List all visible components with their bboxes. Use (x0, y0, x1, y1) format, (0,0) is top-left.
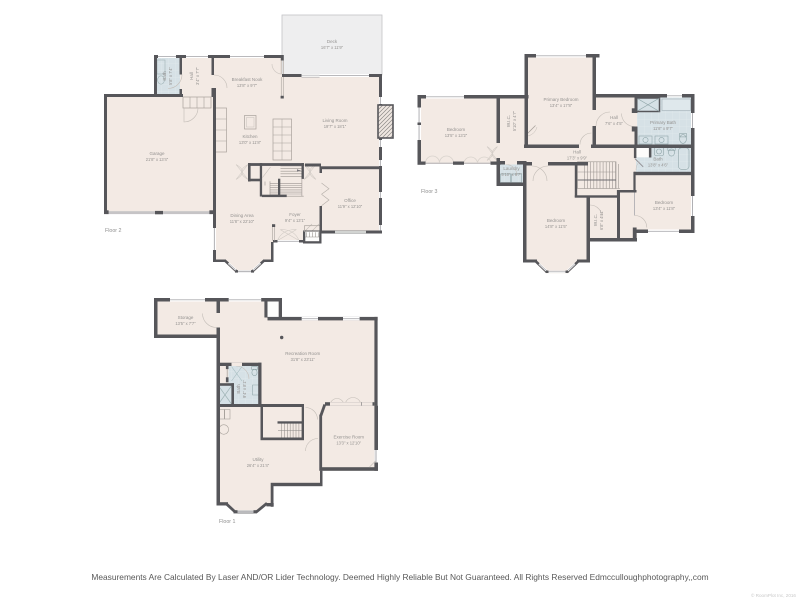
svg-text:© RoomPlot Inc, 2016: © RoomPlot Inc, 2016 (751, 592, 796, 598)
svg-text:13'4" x 17'8": 13'4" x 17'8" (550, 103, 573, 108)
svg-text:W.I.C.: W.I.C. (506, 115, 511, 127)
svg-text:Living Room: Living Room (322, 118, 347, 123)
svg-text:Primary Bath: Primary Bath (650, 120, 677, 125)
svg-text:Floor 1: Floor 1 (219, 519, 236, 525)
svg-text:Office: Office (344, 198, 356, 203)
svg-text:Dining Area: Dining Area (230, 213, 254, 218)
svg-text:Deck: Deck (327, 39, 338, 44)
svg-text:Bedroom: Bedroom (447, 127, 466, 132)
svg-text:13'8" x 9'7": 13'8" x 9'7" (237, 83, 258, 88)
svg-text:Bedroom: Bedroom (547, 218, 566, 223)
svg-text:5'10" x 6'7": 5'10" x 6'7" (501, 172, 522, 177)
svg-text:11'9" x 12'10": 11'9" x 12'10" (338, 204, 363, 209)
svg-text:Storage: Storage (178, 315, 194, 320)
svg-text:11'8" x 22'10": 11'8" x 22'10" (230, 219, 255, 224)
svg-text:Primary Bedroom: Primary Bedroom (543, 97, 578, 102)
svg-text:7'6" x 4'5": 7'6" x 4'5" (605, 121, 623, 126)
svg-text:Hall: Hall (573, 150, 581, 155)
svg-text:Bath: Bath (162, 71, 167, 81)
svg-text:W.I.C.: W.I.C. (593, 214, 598, 226)
svg-text:13'3" x 12'10": 13'3" x 12'10" (336, 441, 361, 446)
svg-text:Bath: Bath (653, 157, 663, 162)
svg-text:Garage: Garage (149, 151, 165, 156)
svg-text:9'4" x 8'1": 9'4" x 8'1" (242, 380, 247, 398)
svg-text:13'5" x 13'2": 13'5" x 13'2" (445, 133, 468, 138)
svg-text:Recreation Room: Recreation Room (285, 351, 320, 356)
svg-text:Hall: Hall (610, 115, 618, 120)
svg-text:13'8" x 4'6": 13'8" x 4'6" (648, 163, 669, 168)
svg-text:Bedroom: Bedroom (655, 200, 674, 205)
svg-text:Bath: Bath (236, 384, 241, 394)
svg-text:5'8" x 7'4": 5'8" x 7'4" (168, 67, 173, 85)
svg-text:6'8" x 4'11": 6'8" x 4'11" (599, 210, 604, 230)
svg-text:Utility: Utility (253, 457, 265, 462)
svg-text:9'4" x 13'1": 9'4" x 13'1" (285, 218, 306, 223)
svg-text:26'4" x 21'4": 26'4" x 21'4" (247, 463, 270, 468)
svg-text:31'8" x 23'11": 31'8" x 23'11" (291, 357, 316, 362)
svg-text:Measurements Are Calculated By: Measurements Are Calculated By Laser AND… (91, 572, 708, 582)
svg-text:13'5" x 7'7": 13'5" x 7'7" (175, 321, 196, 326)
svg-text:Breakfast Nook: Breakfast Nook (232, 77, 264, 82)
svg-text:17'3" x 9'9": 17'3" x 9'9" (567, 156, 588, 161)
svg-text:13'0" x 11'8": 13'0" x 11'8" (239, 140, 262, 145)
svg-text:16'7" x 11'9": 16'7" x 11'9" (321, 45, 344, 50)
svg-text:Floor 2: Floor 2 (105, 228, 122, 234)
svg-text:5'10" x 4'7": 5'10" x 4'7" (512, 110, 517, 131)
svg-text:13'4" x 11'8": 13'4" x 11'8" (653, 206, 676, 211)
svg-text:Kitchen: Kitchen (242, 134, 258, 139)
svg-text:Floor 3: Floor 3 (421, 189, 438, 195)
svg-text:Exercise Room: Exercise Room (333, 435, 364, 440)
svg-text:14'8" x 11'5": 14'8" x 11'5" (545, 224, 568, 229)
svg-text:Laundry: Laundry (503, 166, 520, 171)
svg-text:21'8" x 13'4": 21'8" x 13'4" (146, 157, 169, 162)
svg-text:Hall: Hall (189, 72, 194, 80)
svg-text:11'8" x 9'7": 11'8" x 9'7" (653, 126, 673, 131)
svg-text:Foyer: Foyer (289, 212, 301, 217)
svg-text:3'4" x 7'7": 3'4" x 7'7" (195, 67, 200, 85)
svg-text:19'7" x 18'1": 19'7" x 18'1" (324, 124, 347, 129)
